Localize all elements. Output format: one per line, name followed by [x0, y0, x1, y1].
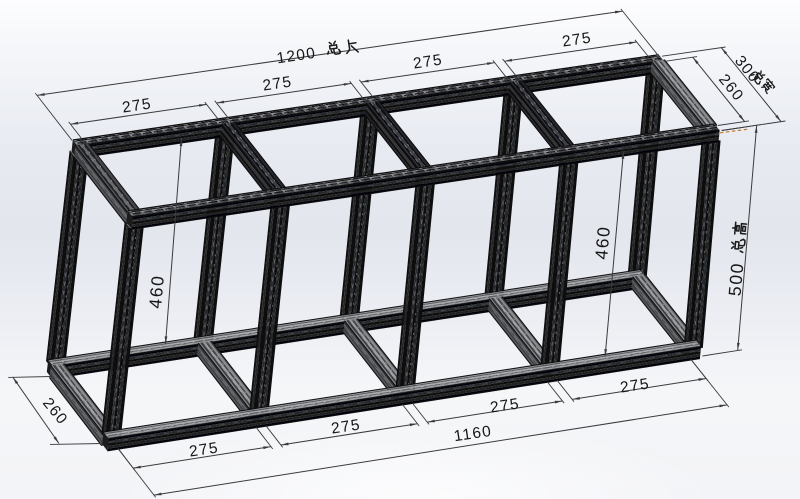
svg-text:275: 275: [561, 29, 593, 50]
svg-text:1160: 1160: [453, 423, 494, 446]
svg-text:275: 275: [330, 416, 362, 437]
svg-text:275: 275: [188, 439, 220, 460]
svg-text:275: 275: [619, 375, 651, 396]
svg-text:275: 275: [121, 95, 153, 116]
svg-text:275: 275: [489, 395, 521, 416]
svg-text:460: 460: [145, 274, 168, 310]
svg-text:460: 460: [591, 225, 614, 261]
svg-text:1200: 1200: [276, 45, 318, 68]
svg-text:275: 275: [412, 51, 444, 72]
svg-text:275: 275: [262, 73, 294, 94]
svg-text:500: 500: [725, 261, 748, 297]
